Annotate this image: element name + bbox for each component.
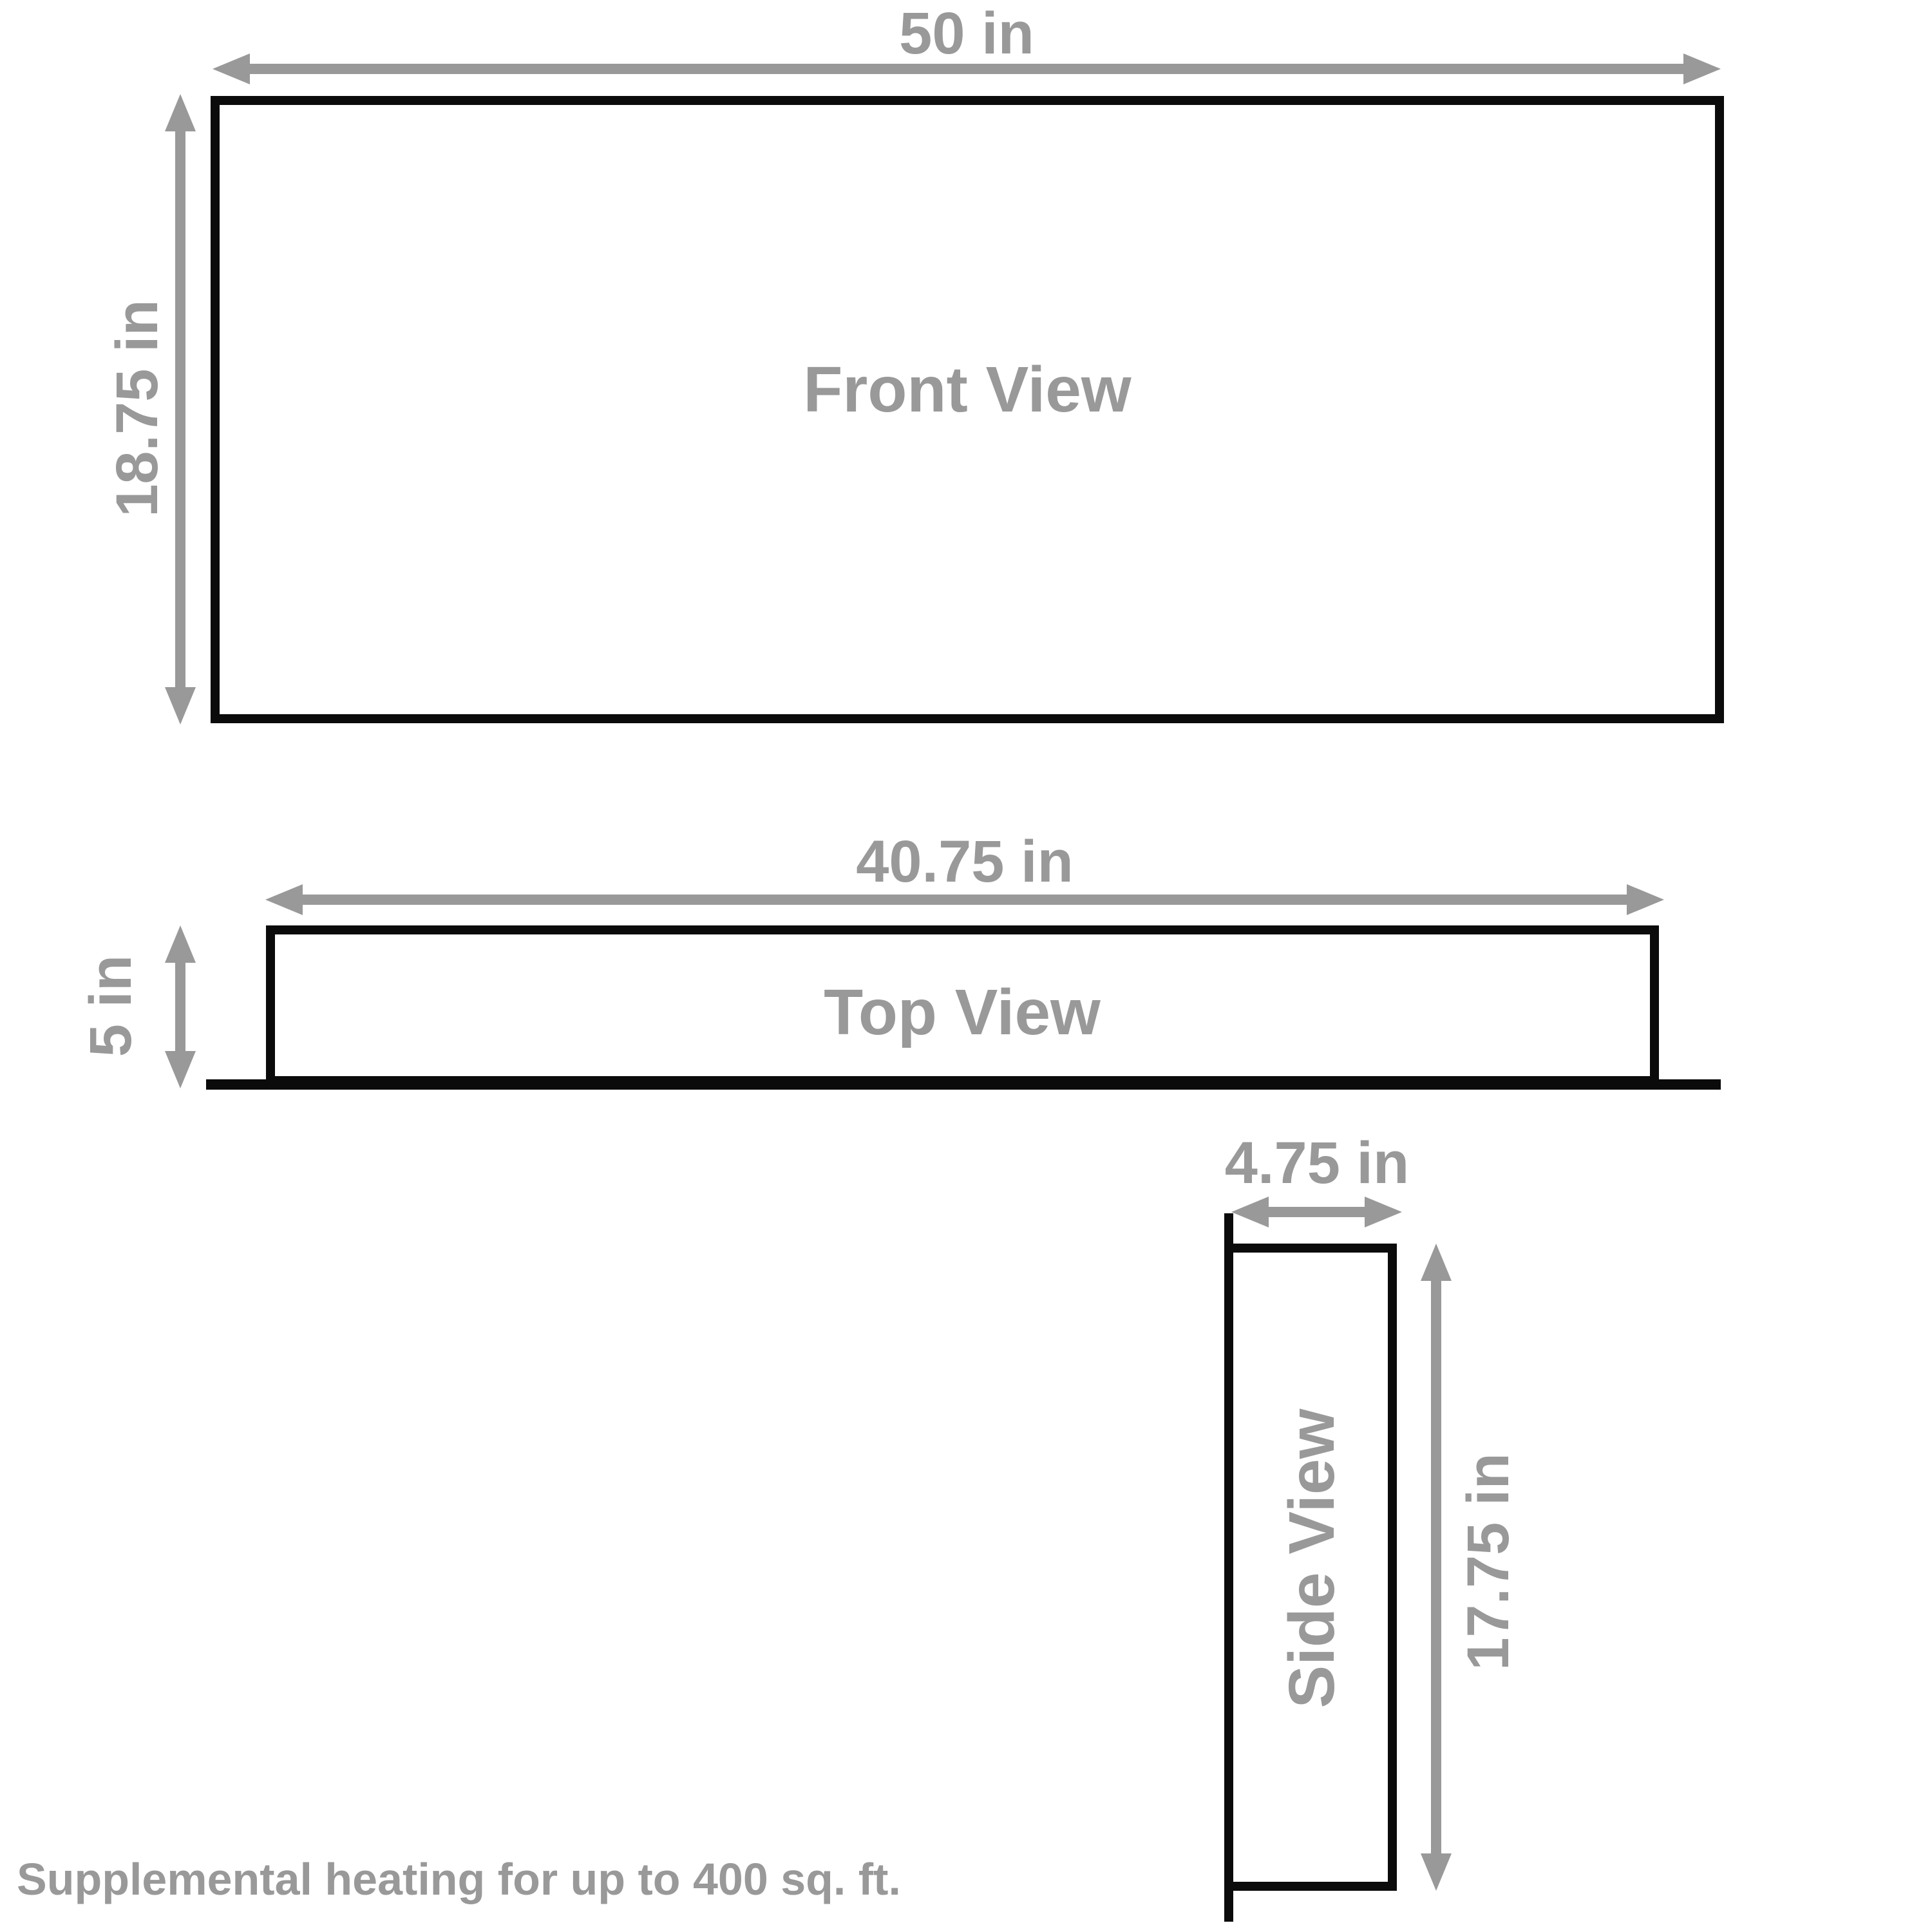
arrow-shaft (303, 895, 1627, 905)
arrowhead-up-icon (165, 94, 196, 131)
side-height-label: 17.75 in (1459, 1453, 1518, 1671)
arrowhead-down-icon (1421, 1853, 1452, 1891)
arrow-shaft (175, 131, 185, 687)
side-depth-label: 4.75 in (1225, 1133, 1409, 1193)
front-width-label: 50 in (899, 4, 1034, 63)
side-height-arrow (1421, 1244, 1452, 1891)
front-height-label: 18.75 in (108, 299, 167, 517)
arrowhead-right-icon (1365, 1197, 1402, 1227)
top-width-label: 40.75 in (856, 832, 1074, 891)
top-view-title: Top View (824, 980, 1101, 1045)
arrowhead-right-icon (1683, 53, 1721, 84)
arrowhead-up-icon (165, 925, 196, 963)
top-view-wall-baseline (206, 1079, 1721, 1090)
top-depth-label: 5 in (81, 955, 140, 1057)
arrowhead-right-icon (1627, 884, 1664, 915)
arrowhead-left-icon (1231, 1197, 1269, 1227)
dimension-diagram: 50 in 18.75 in Front View 40.75 in 5 in … (0, 0, 1932, 1932)
front-view-title: Front View (803, 357, 1131, 422)
arrow-shaft (175, 963, 185, 1051)
arrowhead-left-icon (265, 884, 303, 915)
supplemental-heating-note: Supplemental heating for up to 400 sq. f… (17, 1857, 901, 1902)
arrowhead-down-icon (165, 687, 196, 724)
arrow-shaft (1431, 1281, 1441, 1853)
top-depth-arrow (165, 925, 196, 1088)
side-view-title: Side View (1280, 1408, 1344, 1708)
arrow-shaft (1269, 1207, 1365, 1217)
side-depth-arrow (1231, 1197, 1402, 1227)
arrowhead-down-icon (165, 1051, 196, 1088)
arrowhead-up-icon (1421, 1244, 1452, 1281)
arrowhead-left-icon (213, 53, 250, 84)
